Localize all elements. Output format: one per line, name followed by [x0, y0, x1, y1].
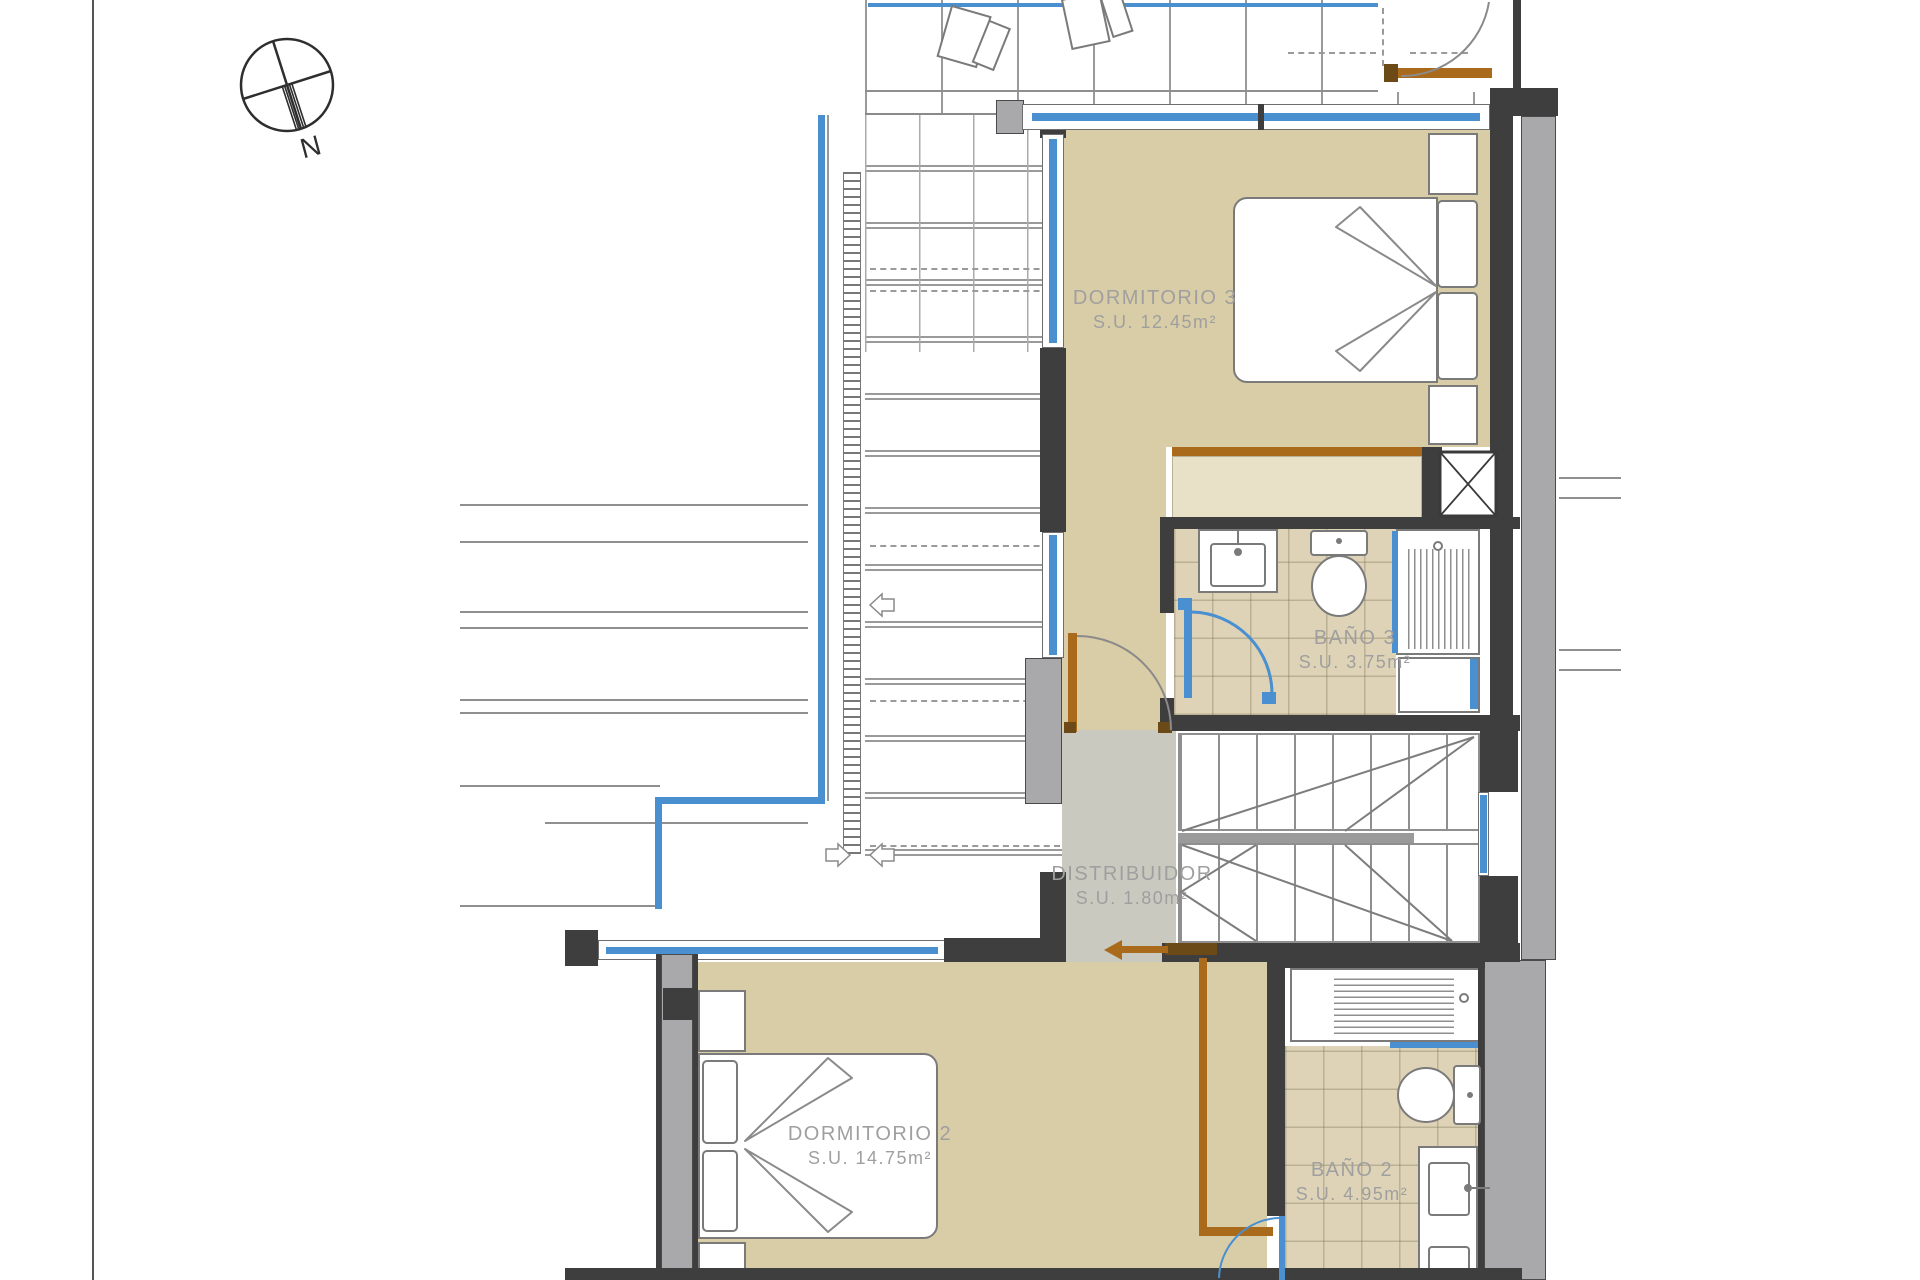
window	[598, 940, 946, 960]
balustrade-line	[827, 115, 829, 801]
bed-pillow	[702, 1060, 738, 1144]
wall-segment	[1160, 715, 1520, 731]
door-leaf	[1068, 633, 1077, 732]
room-label-distribuidor: DISTRIBUIDOR S.U. 1.80m²	[1012, 862, 1252, 910]
glass-balustrade	[655, 797, 825, 804]
door-jamb-glass	[1262, 692, 1276, 704]
site-line	[1559, 497, 1621, 499]
wardrobe-side	[1199, 958, 1207, 1235]
room-label-bano3: BAÑO 3 S.U. 3.75m²	[1235, 626, 1475, 674]
wardrobe-interior	[1172, 456, 1422, 518]
room-name: DISTRIBUIDOR	[1051, 862, 1212, 886]
distribuidor-floor	[1062, 730, 1176, 962]
site-line	[545, 822, 808, 824]
entry-landing	[1378, 0, 1513, 92]
wall-segment	[1160, 529, 1174, 613]
party-wall	[1484, 960, 1546, 1280]
nightstand	[1428, 133, 1478, 195]
site-line	[460, 712, 808, 714]
frame-border-line	[92, 0, 94, 1280]
site-line	[460, 699, 808, 701]
compass-north-icon: N	[241, 39, 333, 164]
wall-pier	[1025, 658, 1062, 804]
flow-arrow-shaft	[1118, 946, 1168, 953]
bed-pillow	[1437, 292, 1478, 380]
compass-label: N	[297, 129, 325, 164]
room-label-dormitorio2: DORMITORIO 2 S.U. 14.75m²	[740, 1122, 1000, 1170]
wall-segment	[565, 930, 598, 966]
shower-screen	[1390, 1042, 1482, 1048]
site-line	[1559, 649, 1621, 651]
bed-pillow	[702, 1150, 738, 1232]
entry-dashed-line	[1382, 8, 1384, 66]
glass-balustrade	[818, 115, 825, 801]
door-leaf-glass	[1184, 610, 1192, 698]
wall-segment	[663, 988, 693, 1020]
pergola-dashed-line	[870, 545, 1060, 547]
floor-plan: N	[0, 0, 1920, 1280]
bed-pillow	[1437, 200, 1478, 288]
site-line	[460, 785, 660, 787]
site-line	[460, 504, 808, 506]
door-jamb	[1158, 722, 1172, 733]
sink-basin	[1210, 543, 1266, 587]
site-line	[1559, 669, 1621, 671]
wall-segment	[1422, 447, 1442, 518]
threshold-block	[1384, 64, 1398, 82]
wall-segment	[565, 1268, 1522, 1280]
stair-flight-upper	[1178, 733, 1480, 831]
site-line	[460, 627, 808, 629]
wall-segment	[944, 938, 1066, 962]
room-name: BAÑO 3	[1314, 626, 1396, 650]
wall-segment	[1285, 954, 1485, 968]
pergola-dashed-line	[870, 845, 1060, 847]
pergola-dashed-line	[870, 268, 1060, 270]
window	[1022, 104, 1490, 130]
site-line	[1559, 477, 1621, 479]
window	[1042, 532, 1064, 658]
wardrobe-front	[1172, 447, 1422, 456]
entry-threshold	[1398, 68, 1492, 78]
wardrobe-block	[1165, 943, 1217, 955]
stair-stringer	[1178, 833, 1414, 843]
drainage-channel-hatch	[843, 172, 861, 854]
door-leaf-glass	[1279, 1216, 1285, 1280]
party-wall	[1521, 116, 1556, 960]
window	[1478, 792, 1489, 876]
nightstand	[1428, 385, 1478, 445]
door-jamb-glass	[1178, 598, 1192, 610]
wall-segment	[1160, 517, 1520, 529]
shower-grate	[1334, 976, 1454, 1034]
room-area: S.U. 3.75m²	[1299, 650, 1412, 674]
glass-balustrade	[655, 797, 662, 909]
site-line	[460, 541, 808, 543]
room-area: S.U. 12.45m²	[1093, 310, 1217, 334]
entry-dashed-line	[1410, 52, 1468, 54]
terrace-glass-top	[868, 3, 1378, 7]
room-area: S.U. 14.75m²	[808, 1146, 932, 1170]
wall-pier	[996, 100, 1024, 134]
wall-segment	[1040, 348, 1066, 532]
room-label-bano2: BAÑO 2 S.U. 4.95m²	[1232, 1158, 1472, 1206]
door-jamb	[1064, 722, 1076, 733]
room-area: S.U. 4.95m²	[1296, 1182, 1409, 1206]
wall-segment	[1490, 96, 1513, 716]
room-name: DORMITORIO 3	[1073, 286, 1237, 310]
wall-segment	[1478, 960, 1484, 1280]
wall-segment	[693, 954, 698, 1280]
upper-hall-floor	[1062, 447, 1166, 730]
room-name: DORMITORIO 2	[788, 1122, 952, 1146]
entry-dashed-line	[1288, 52, 1376, 54]
wardrobe-side	[1199, 1227, 1273, 1236]
wall-segment	[1258, 104, 1264, 130]
duct-shaft	[1440, 452, 1496, 516]
room-area: S.U. 1.80m²	[1076, 886, 1189, 910]
nightstand	[698, 990, 746, 1052]
room-label-dormitorio3: DORMITORIO 3 S.U. 12.45m²	[1030, 286, 1280, 334]
site-line	[460, 905, 656, 907]
room-name: BAÑO 2	[1311, 1158, 1393, 1182]
wall-segment	[1513, 0, 1521, 88]
site-line	[460, 611, 808, 613]
